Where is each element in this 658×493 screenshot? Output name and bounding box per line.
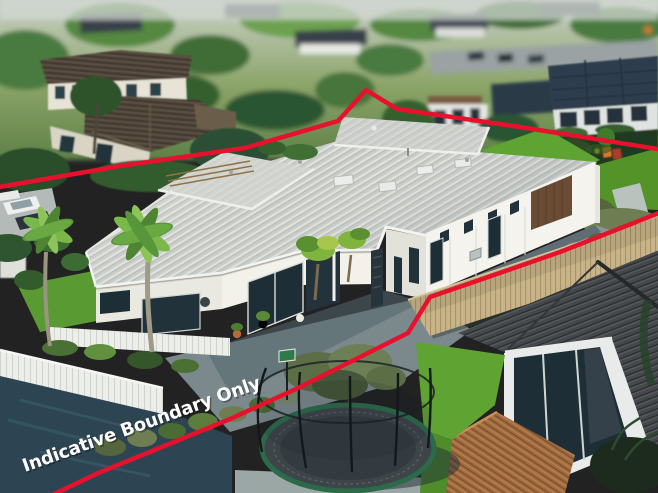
basketball-hoop <box>279 349 295 362</box>
photo-canvas: Indicative Boundary Only Indicative Boun… <box>0 0 658 493</box>
left-window-1 <box>100 290 130 314</box>
aerial-property-photo: Indicative Boundary Only Indicative Boun… <box>0 0 658 493</box>
right-wing-sw-wall <box>386 229 426 299</box>
roof-vent-whirlybird <box>371 125 376 130</box>
